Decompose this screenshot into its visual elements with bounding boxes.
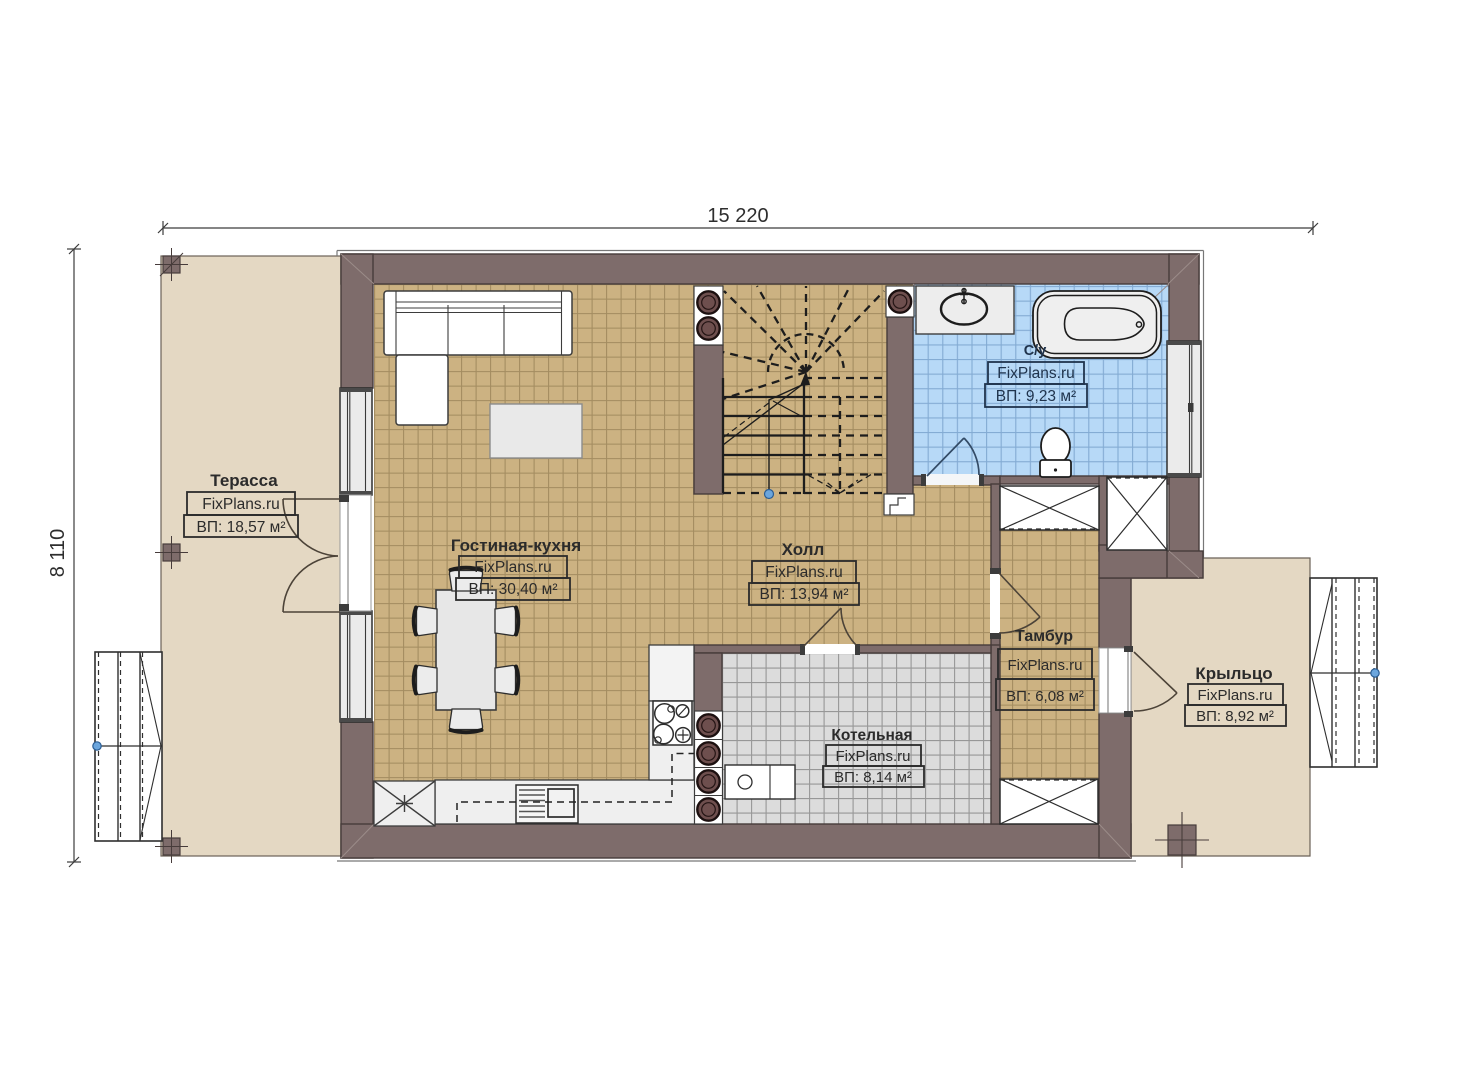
svg-text:ВП: 9,23 м²: ВП: 9,23 м² <box>996 388 1076 405</box>
svg-text:ВП: 6,08 м²: ВП: 6,08 м² <box>1006 688 1084 705</box>
svg-text:FixPlans.ru: FixPlans.ru <box>765 564 843 581</box>
svg-text:FixPlans.ru: FixPlans.ru <box>1007 657 1082 674</box>
svg-text:ВП: 13,94 м²: ВП: 13,94 м² <box>759 586 848 603</box>
svg-text:ВП: 8,92 м²: ВП: 8,92 м² <box>1196 708 1274 725</box>
svg-text:Гостиная-кухня: Гостиная-кухня <box>451 536 581 555</box>
svg-text:ВП: 8,14 м²: ВП: 8,14 м² <box>834 769 912 786</box>
svg-text:8 110: 8 110 <box>47 529 69 578</box>
svg-text:Крыльцо: Крыльцо <box>1195 664 1272 683</box>
svg-text:С/у: С/у <box>1024 343 1047 359</box>
svg-text:Холл: Холл <box>782 540 825 559</box>
svg-text:Тамбур: Тамбур <box>1015 628 1073 645</box>
svg-text:FixPlans.ru: FixPlans.ru <box>474 559 552 576</box>
svg-text:FixPlans.ru: FixPlans.ru <box>997 365 1075 382</box>
svg-text:FixPlans.ru: FixPlans.ru <box>202 496 280 513</box>
svg-text:Котельная: Котельная <box>831 727 912 744</box>
svg-text:ВП: 18,57 м²: ВП: 18,57 м² <box>196 519 285 536</box>
svg-text:FixPlans.ru: FixPlans.ru <box>1197 687 1272 704</box>
svg-text:ВП: 30,40 м²: ВП: 30,40 м² <box>468 581 557 598</box>
svg-text:Терасса: Терасса <box>210 471 278 490</box>
svg-text:FixPlans.ru: FixPlans.ru <box>835 748 910 765</box>
svg-text:15 220: 15 220 <box>707 205 768 227</box>
